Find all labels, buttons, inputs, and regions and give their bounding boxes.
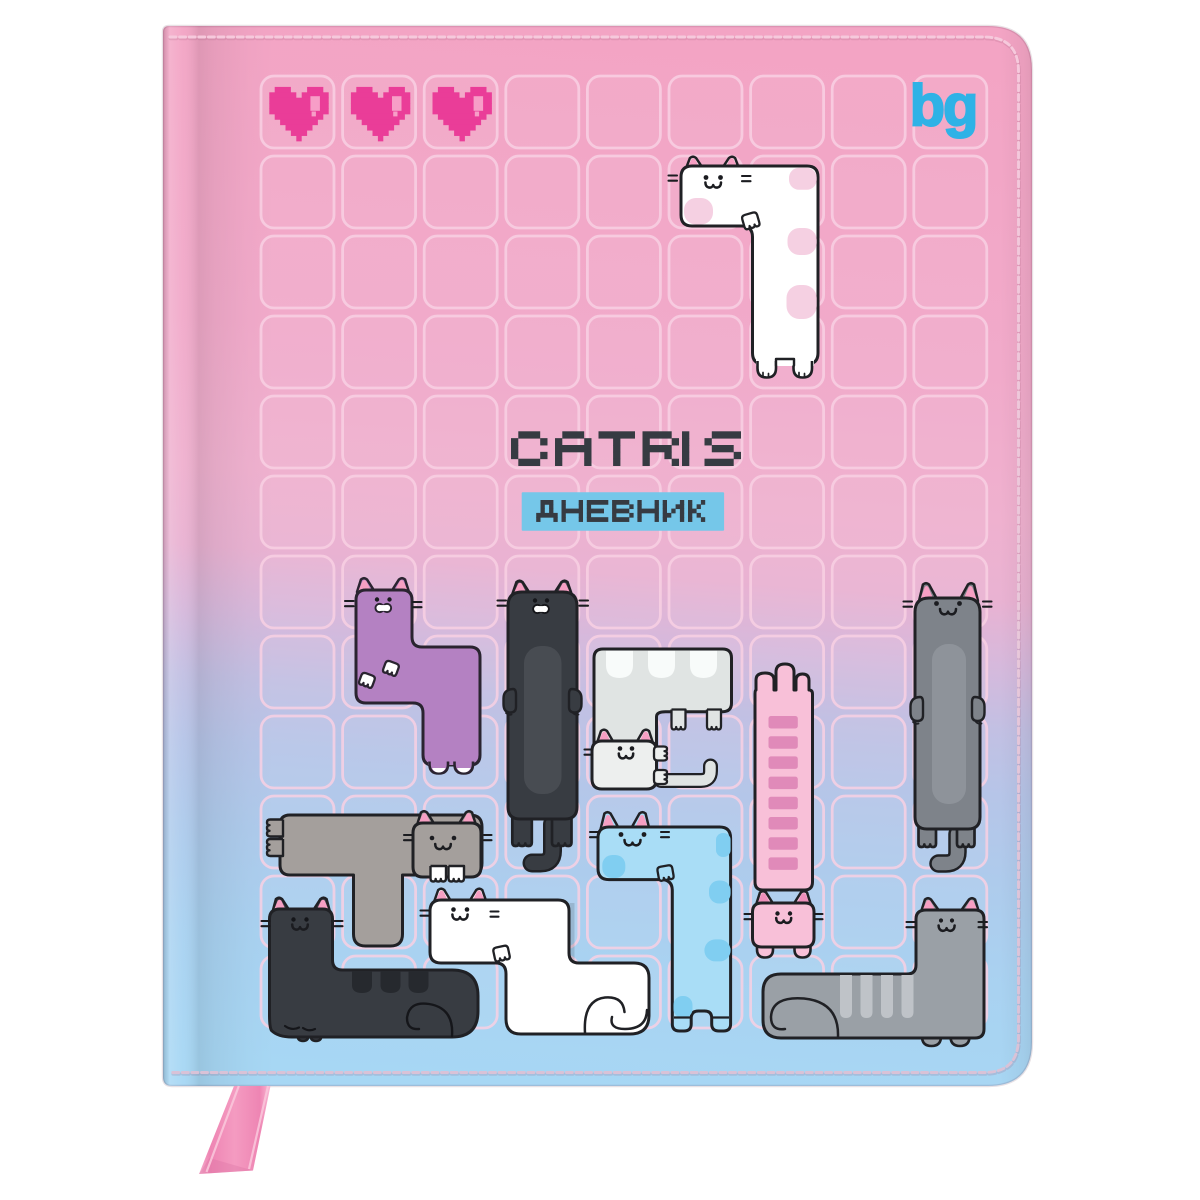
svg-text:bg: bg — [910, 74, 977, 139]
